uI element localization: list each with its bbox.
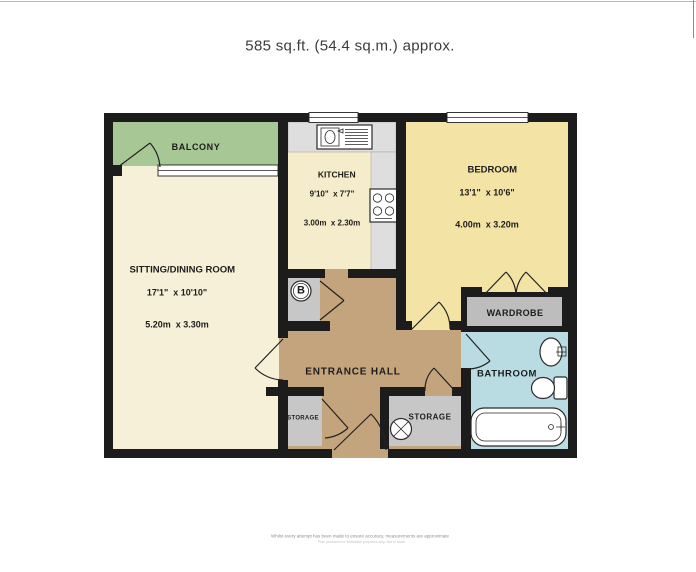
balcony-label: BALCONY [172,142,221,152]
bedroom-name: BEDROOM [467,164,517,175]
sink-unit-icon [317,125,372,149]
bathtub-icon [471,408,566,446]
kitchen-size-metric: 3.00m x 2.30m [304,219,360,228]
storage-large-label: STORAGE [409,412,452,421]
washer-icon [391,419,412,440]
kitchen-entry-gap [325,269,348,279]
storage-small-label: STORAGE [287,416,319,423]
hob-icon [370,189,397,222]
storage-small-wall-top [266,387,324,396]
floorplan-drawing [0,0,696,572]
bedroom-wall-south-a [396,321,412,330]
sitting-door-gap [279,338,288,380]
watermark-line1: Whilst every attempt has been made to en… [271,534,449,539]
storage-large-wall-top [380,387,425,396]
boiler-letter: B [297,285,305,298]
bedroom-label: BEDROOM 13'1" x 10'6" 4.00m x 3.20m [455,154,519,251]
kitchen-size-imperial: 9'10" x 7'7" [304,190,360,199]
kitchen-name: KITCHEN [318,169,356,179]
kitchen-label: KITCHEN 9'10" x 7'7" 3.00m x 2.30m [304,161,360,248]
sitting-window [158,165,278,176]
floorplan-page: 585 sq.ft. (54.4 sq.m.) approx. [0,0,696,572]
watermark-line2: Plan produced for illustrative purposes … [318,540,406,544]
kitchen-wall-south-a [279,269,325,278]
boiler-cupboard-wall [279,321,330,331]
wall-bottom-right [388,449,577,458]
sitting-room-size-metric: 5.20m x 3.30m [119,319,235,329]
entrance-door-gap [332,449,388,458]
sitting-room-size-imperial: 17'1" x 10'10" [119,287,235,297]
wall-right [568,113,577,458]
bathroom-wall-west [461,368,471,449]
wall-left [104,113,113,458]
wall-mid-upper [278,113,288,338]
wall-bottom-left [104,449,332,458]
bedroom-window [447,113,528,123]
bedroom-size-imperial: 13'1" x 10'6" [455,187,519,197]
entrance-hall-label: ENTRANCE HALL [305,366,400,378]
bedroom-door-gap [412,321,450,330]
kitchen-wall-south-b [348,269,396,278]
wardrobe-label: WARDROBE [487,308,544,318]
bedroom-wall-south-b [450,321,466,330]
bathroom-label: BATHROOM [477,370,537,381]
bedroom-wall-west [396,113,406,330]
sitting-room-name: SITTING/DINING ROOM [130,264,236,275]
sitting-room-label: SITTING/DINING ROOM 17'1" x 10'10" 5.20m… [119,254,235,351]
bedroom-size-metric: 4.00m x 3.20m [455,219,519,229]
kitchen-window [309,113,358,123]
